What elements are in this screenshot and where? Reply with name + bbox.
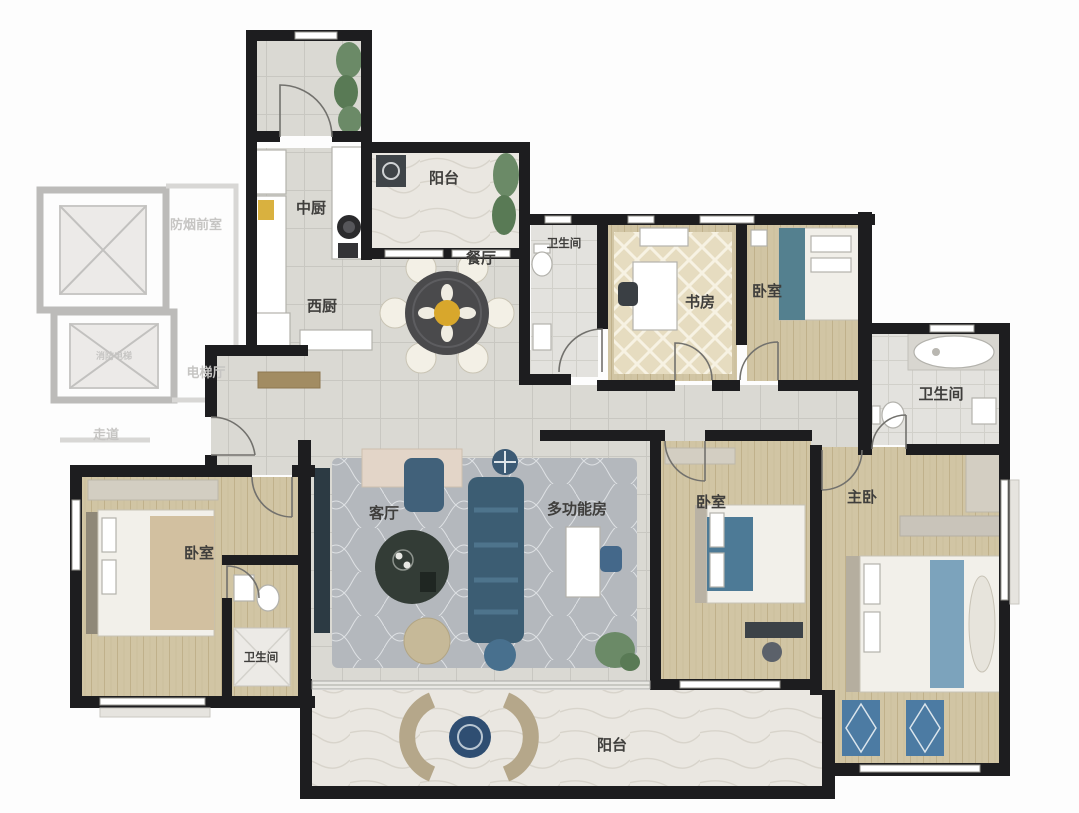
headboard-left [86, 512, 98, 634]
wardrobe-mid [665, 448, 735, 464]
west-kitchen-island [300, 330, 372, 350]
floor-mat-2 [906, 700, 944, 756]
core-label-smoke-lobby: 防烟前室 [170, 217, 222, 232]
kitchen-appliance [258, 200, 274, 220]
multi-chair [600, 546, 622, 572]
room-label-bathroom-right: 卫生间 [918, 385, 963, 403]
toilet-bl [257, 585, 279, 611]
core-label-elevator-hall: 电梯厅 [186, 365, 225, 380]
desk [633, 262, 677, 330]
kitchen-counter-right [332, 147, 362, 259]
balcony-table [449, 716, 491, 758]
armchair [404, 458, 444, 512]
room-label-master: 主卧 [847, 488, 877, 506]
washing-machine [376, 155, 406, 187]
bookshelf [640, 228, 688, 246]
tv-bench-mid [745, 622, 803, 638]
room-label-bedroom-mid: 卧室 [696, 493, 726, 511]
multi-desk [566, 527, 600, 597]
headboard-mid [695, 505, 707, 603]
round-rug [484, 639, 516, 671]
room-label-bathroom-bl: 卫生间 [244, 650, 279, 664]
west-kitchen-cabinet [256, 313, 290, 347]
sofa [468, 477, 524, 643]
bathtub [914, 336, 994, 368]
floor-plan-canvas: 中厨 阳台 西厨 餐厅 卫生间 书房 卧室 卫生间 客厅 多功能房 卧室 主卧 … [0, 0, 1079, 813]
room-label-bedroom-left: 卧室 [184, 544, 214, 562]
coffee-table [375, 530, 449, 604]
master-wardrobe [966, 452, 1000, 512]
wardrobe-left [88, 480, 218, 500]
master-bench [900, 516, 1000, 536]
room-label-kitchen-west: 西厨 [307, 298, 337, 315]
balcony-bottom-floor [312, 690, 822, 786]
entry-console [258, 372, 320, 388]
core-label-corridor: 走道 [93, 427, 119, 442]
room-label-balcony-top: 阳台 [429, 169, 459, 187]
toilet-top [532, 252, 552, 276]
kitchen-sink [338, 243, 358, 258]
window-sill-left [100, 708, 210, 717]
room-label-bathroom-top: 卫生间 [547, 236, 582, 250]
sink-right [972, 398, 996, 424]
room-label-multifunction: 多功能房 [547, 500, 607, 518]
nightstand [751, 230, 767, 246]
pouf [404, 618, 450, 664]
floor-plan-svg: 中厨 阳台 西厨 餐厅 卫生间 书房 卧室 卫生间 客厅 多功能房 卧室 主卧 … [0, 0, 1079, 813]
room-label-living: 客厅 [368, 504, 399, 522]
floor-mat-1 [842, 700, 880, 756]
sink-bl [234, 575, 254, 601]
room-label-bedroom-tr: 卧室 [752, 282, 782, 300]
stool-mid [762, 642, 782, 662]
core-label-fire-elevator: 消防电梯 [96, 350, 132, 361]
room-label-kitchen-chinese: 中厨 [296, 199, 326, 217]
sink-top [533, 324, 551, 350]
master-headboard [846, 556, 860, 692]
tv-console [314, 468, 330, 633]
window-sill-right [1010, 480, 1019, 604]
desk-chair [618, 282, 638, 306]
fridge [256, 150, 286, 194]
room-label-study: 书房 [685, 293, 715, 311]
room-label-dining: 餐厅 [466, 249, 496, 267]
room-label-balcony-bottom: 阳台 [597, 736, 627, 754]
